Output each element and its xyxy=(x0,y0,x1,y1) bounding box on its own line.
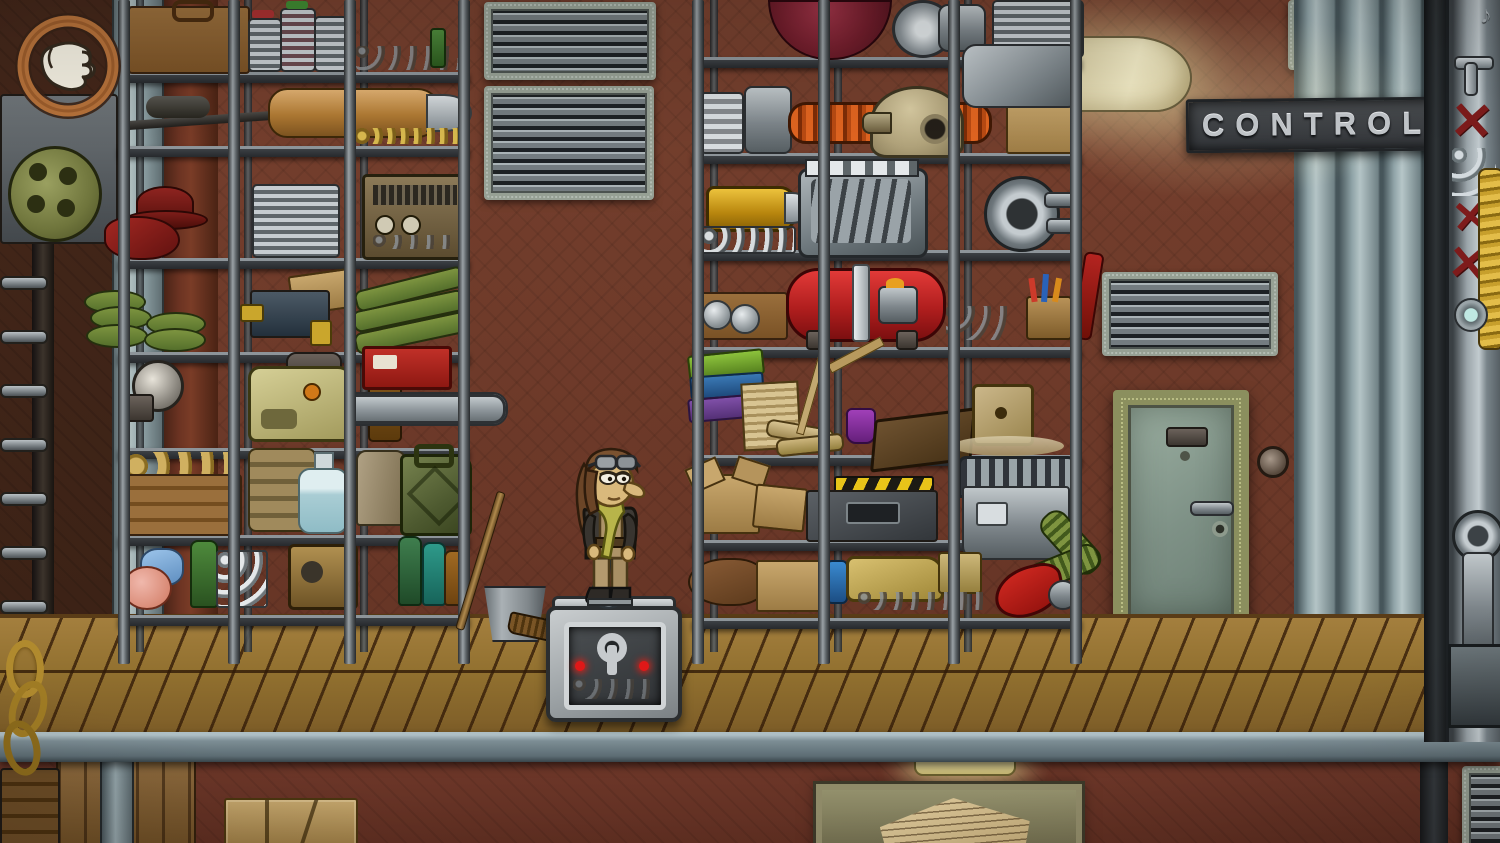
tin-can[interactable] xyxy=(700,92,744,154)
red-x-icon: ✕ xyxy=(1448,91,1495,153)
pump-hub xyxy=(984,176,1060,252)
hand-cursor-icon xyxy=(12,12,124,124)
tank-strap xyxy=(852,264,870,342)
crossed-out-machine: ✕ ✕ ✕ ♪ xyxy=(1424,0,1500,742)
tank-foot xyxy=(896,330,918,350)
yellow-shell[interactable] xyxy=(698,186,808,228)
box-panel xyxy=(564,622,666,710)
rack-post xyxy=(948,0,960,664)
control-sign-label: CONTROL xyxy=(1194,106,1433,144)
helmet-spout xyxy=(862,112,892,134)
machine-base xyxy=(1448,644,1500,728)
die-pip xyxy=(995,407,1007,419)
control-sign[interactable]: CONTROL xyxy=(1186,97,1441,154)
open-box xyxy=(752,483,808,532)
character-drawing xyxy=(556,436,666,616)
music-note-icon: ♪ xyxy=(1480,2,1492,30)
mug[interactable] xyxy=(938,552,982,594)
box-keyhole-stem xyxy=(607,645,617,675)
game-scene: CONTROL xyxy=(0,0,1500,843)
tank-flame xyxy=(886,278,904,288)
rack-post xyxy=(818,0,830,664)
pump-wheel[interactable] xyxy=(974,176,1078,250)
box-low[interactable] xyxy=(756,560,826,612)
red-balloon[interactable] xyxy=(768,0,892,60)
red-horn[interactable] xyxy=(986,562,1076,616)
box-pipes xyxy=(573,679,651,699)
rack-post xyxy=(1070,0,1082,664)
sand-pile xyxy=(952,436,1064,456)
mechanic-character[interactable] xyxy=(556,436,666,616)
piston-cylinder xyxy=(1462,552,1494,652)
tank-gauge xyxy=(878,286,918,324)
cup xyxy=(1026,296,1072,340)
typewriter[interactable] xyxy=(700,226,796,254)
machine-gap-column xyxy=(1424,0,1448,742)
chain-links xyxy=(2,640,36,760)
vacuum-panel xyxy=(976,502,1008,526)
box-red-light xyxy=(639,661,649,671)
hand-cursor-emblem[interactable] xyxy=(12,12,124,124)
open-boxes[interactable] xyxy=(694,466,802,538)
ink-bottle[interactable] xyxy=(846,408,876,444)
tool-clutter-low[interactable] xyxy=(858,592,988,610)
steel-beam xyxy=(0,732,1500,762)
pencil-cup[interactable] xyxy=(1018,280,1076,338)
shelf-board xyxy=(692,618,1082,629)
device-screen xyxy=(846,502,900,524)
valve-assembly[interactable] xyxy=(962,44,1082,108)
metal-canister[interactable] xyxy=(744,86,792,154)
helmet-porthole xyxy=(920,114,950,144)
machine-port xyxy=(1454,298,1488,332)
binocular-lens xyxy=(702,300,732,330)
binoculars-box[interactable] xyxy=(694,292,788,340)
box-red-light xyxy=(575,661,585,671)
red-pressure-tank[interactable] xyxy=(786,268,940,346)
binocular-lens xyxy=(730,304,760,334)
rack-post xyxy=(692,0,704,664)
